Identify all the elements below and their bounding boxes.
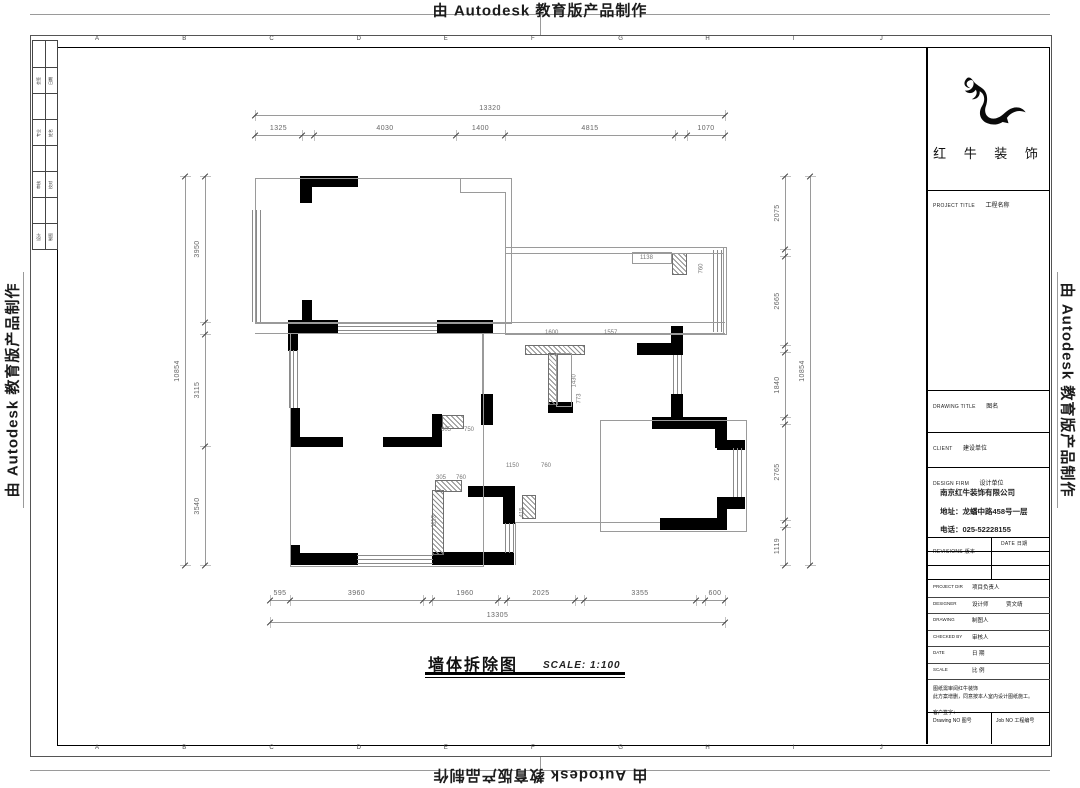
info-row-label-en: DESIGNER [933, 601, 957, 606]
dimension-label: 600 [690, 590, 740, 598]
info-row-label-en: DRAWING [933, 617, 955, 622]
tb-divider [928, 537, 1050, 538]
info-row-label-en: DATE [933, 650, 945, 655]
dimension-label: 3950 [194, 224, 202, 274]
info-row-value: 贾文靖 [1006, 600, 1023, 608]
dimension-line [270, 622, 725, 623]
number-cells-divider [991, 712, 992, 744]
wall-outline [255, 178, 512, 324]
thin-line [505, 253, 723, 254]
info-row-label-zh: 设计师 [972, 600, 989, 608]
dimension-label: 595 [255, 590, 305, 598]
tb-divider [928, 390, 1050, 391]
revisions-label: REVISIONS 版本 [933, 549, 975, 555]
inner-dimension-label: 1557 [604, 330, 628, 337]
title-block-info-row: DESIGNER设计师贾文靖 [928, 597, 1050, 615]
drawing-scale: SCALE: 1:100 [543, 660, 621, 671]
dimension-label: 2025 [516, 590, 566, 598]
title-block-info-row: PROJECT DIR项目负责人 [928, 580, 1050, 598]
dimension-label: 13320 [465, 105, 515, 113]
wall-outline [600, 420, 747, 532]
thin-line [515, 522, 516, 565]
wall-segment [503, 486, 515, 524]
company-address: 地址：龙蟠中路458号一层 [940, 506, 1028, 517]
dimension-label: 2075 [774, 188, 782, 238]
dimension-label: 4815 [565, 125, 615, 133]
thin-line [255, 333, 725, 334]
title-block: 红 牛 装 饰 PROJECT TITLE 工程名称 DRAWING TITLE… [927, 47, 1050, 744]
dimension-label: 1325 [254, 125, 304, 133]
thin-line [505, 192, 506, 248]
inner-dimension-label: 1113 [432, 504, 439, 528]
dimension-line [205, 176, 206, 565]
company-phone: 电话：025-52228155 [940, 524, 1011, 535]
dimension-line [185, 176, 186, 565]
dimension-line [255, 135, 725, 136]
revisions-column-divider [991, 537, 992, 580]
inner-dimension-label: 1138 [640, 255, 664, 262]
thin-line [482, 333, 483, 394]
inner-dimension-label: 773 [577, 380, 584, 404]
dimension-label: 10854 [174, 346, 182, 396]
dimension-label: 1960 [440, 590, 490, 598]
revisions-row-line [928, 565, 1050, 566]
thin-line [460, 192, 505, 193]
project-title-label-en: PROJECT TITLE [933, 203, 975, 209]
inner-dimension-label: 1150 [506, 463, 530, 470]
info-row-label-en: CHECKED BY [933, 634, 962, 639]
dimension-label: 4030 [360, 125, 410, 133]
thin-line [290, 447, 291, 553]
inner-dimension-label: 760 [541, 463, 565, 470]
inner-dimension-label: 605 [441, 427, 465, 434]
company-logo-name: 红 牛 装 饰 [928, 143, 1050, 162]
info-row-label-zh: 制图人 [972, 616, 989, 624]
thin-line [460, 178, 461, 192]
dimension-label: 1070 [681, 125, 731, 133]
info-row-label-zh: 日 期 [972, 649, 985, 657]
title-block-info-rows: PROJECT DIR项目负责人DESIGNER设计师贾文靖DRAWING制图人… [928, 580, 1050, 679]
revisions-header: REVISIONS 版本 DATE 日期 [933, 540, 1046, 558]
job-no-label: Job NO 工程编号 [996, 717, 1034, 724]
info-row-label-en: SCALE [933, 667, 948, 672]
thin-line [515, 522, 660, 523]
tb-client-row: CLIENT 建设单位 [933, 437, 1046, 455]
dimension-label: 2665 [774, 276, 782, 326]
info-row-label-zh: 审核人 [972, 633, 989, 641]
floor-plan: 1332013254030140048151070595396019602025… [0, 0, 1080, 788]
dimension-label: 1119 [774, 521, 782, 571]
inner-dimension-label: 1600 [545, 330, 569, 337]
drawing-no-label: Drawing NO 图号 [933, 717, 972, 724]
title-underline-thick [425, 672, 625, 675]
tb-drawing-title-row: DRAWING TITLE 图名 [933, 395, 1046, 413]
title-block-note-1: 图纸需审阅红牛装饰 [933, 685, 1046, 693]
tb-divider [928, 467, 1050, 468]
title-block-info-row: SCALE比 例 [928, 663, 1050, 681]
info-row-label-en: PROJECT DIR [933, 584, 963, 589]
client-label-zh: 建设单位 [963, 446, 987, 452]
window-lines [673, 355, 682, 394]
dimension-label: 1400 [456, 125, 506, 133]
drawing-sheet-page: 由 Autodesk 教育版产品制作 由 Autodesk 教育版产品制作 由 … [0, 0, 1080, 788]
company-name: 南京红牛装饰有限公司 [940, 487, 1015, 498]
thin-line [255, 322, 725, 323]
dimension-label: 3355 [615, 590, 665, 598]
title-block-note-2: 此方案增删，同意按本人室内设计图纸施工。 [933, 693, 1046, 701]
dimension-label: 3115 [194, 365, 202, 415]
inner-dimension-label: 760 [456, 475, 480, 482]
wall-outline [556, 353, 572, 407]
drawing-title-label-en: DRAWING TITLE [933, 404, 976, 410]
client-signature-label: 客户签字： [933, 709, 1046, 717]
inner-dimension-label: 750 [464, 427, 488, 434]
revisions-row-line [928, 551, 1050, 552]
wall-segment [671, 394, 683, 418]
title-block-info-row: DATE日 期 [928, 646, 1050, 664]
dimension-label: 1840 [774, 360, 782, 410]
tb-project-title-row: PROJECT TITLE 工程名称 [933, 194, 1046, 212]
revision-date-label: DATE 日期 [1001, 540, 1027, 547]
dimension-line [810, 176, 811, 565]
title-block-info-row: DRAWING制图人 [928, 613, 1050, 631]
dimension-label: 3960 [332, 590, 382, 598]
dimension-label: 3540 [194, 481, 202, 531]
wall-outline [290, 333, 484, 567]
dimension-line [255, 115, 725, 116]
client-label-en: CLIENT [933, 446, 953, 452]
dimension-line [785, 176, 786, 565]
redbull-logo-icon [950, 72, 1028, 134]
tb-divider [928, 712, 1050, 713]
tb-divider [928, 190, 1050, 191]
dimension-label: 10854 [799, 346, 807, 396]
title-block-info-row: CHECKED BY审核人 [928, 630, 1050, 648]
window-lines [505, 523, 514, 553]
title-underline-thin [425, 677, 625, 678]
project-title-label-zh: 工程名称 [986, 203, 1010, 209]
tb-divider [928, 432, 1050, 433]
thin-line [723, 247, 724, 333]
inner-dimension-label: 415 [520, 494, 527, 518]
info-row-label-zh: 比 例 [972, 666, 985, 674]
info-row-label-zh: 项目负责人 [972, 583, 1000, 591]
dimension-label: 13305 [473, 612, 523, 620]
dimension-label: 2765 [774, 447, 782, 497]
inner-dimension-label: 760 [699, 250, 706, 274]
drawing-title-label-zh: 图名 [986, 404, 998, 410]
